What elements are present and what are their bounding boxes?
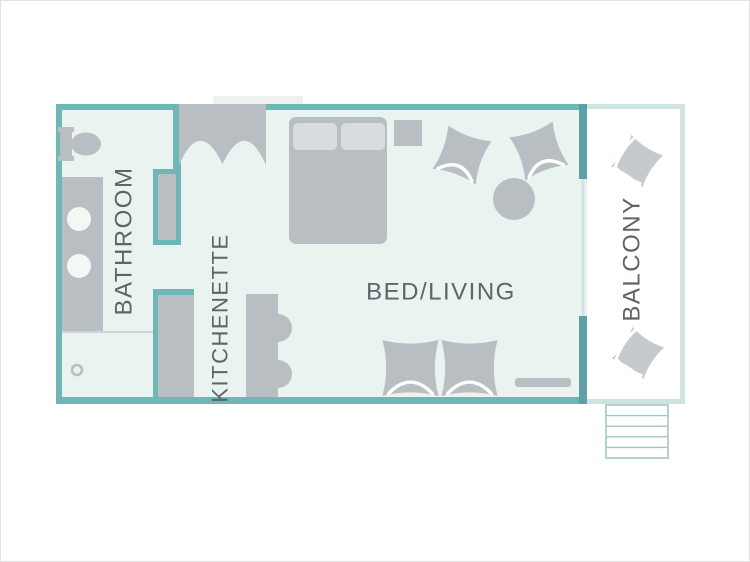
interior-wall-kitchenette — [153, 289, 194, 397]
entry-landing — [213, 96, 303, 105]
sink — [67, 207, 91, 231]
interior-wall-bathroom — [153, 169, 181, 245]
balcony-glass-door — [582, 179, 585, 316]
label-balcony: BALCONY — [619, 196, 646, 321]
floor-plan-page: BATHROOM KITCHENETTE BED/LIVING BALCONY — [0, 0, 750, 562]
balcony-wall-bottom — [587, 399, 685, 404]
wall-right-upper — [579, 104, 587, 179]
pillow — [293, 123, 337, 150]
vanity-counter — [62, 177, 103, 332]
label-bed-living: BED/LIVING — [366, 279, 516, 306]
sofa-cushion — [441, 340, 497, 396]
pillow — [341, 123, 385, 150]
stairs — [606, 405, 668, 458]
balcony-wall-top — [587, 104, 685, 109]
wall-bottom — [56, 397, 587, 404]
label-kitchenette: KITCHENETTE — [208, 233, 233, 402]
balcony-wall-right — [680, 104, 685, 404]
floor-plan: BATHROOM KITCHENETTE BED/LIVING BALCONY — [1, 1, 750, 562]
toilet-tank — [60, 129, 72, 159]
coffee-table — [493, 178, 535, 220]
sink — [67, 254, 91, 278]
tv-shelf — [515, 378, 571, 387]
bar-counter — [246, 294, 278, 397]
toilet-bowl — [71, 133, 101, 156]
shower-divider — [62, 331, 153, 333]
wall-right-lower — [579, 316, 587, 404]
sofa-cushion — [382, 340, 438, 396]
label-bathroom: BATHROOM — [111, 167, 138, 316]
nightstand — [394, 120, 422, 146]
wall-top — [56, 104, 587, 110]
